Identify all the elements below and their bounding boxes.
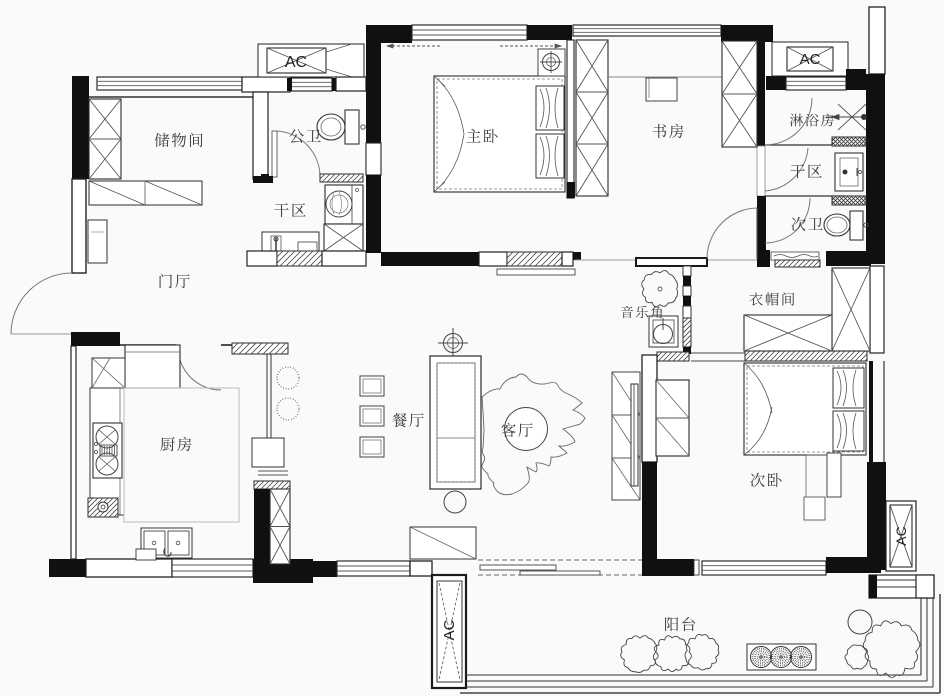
svg-text:AC: AC: [800, 51, 821, 68]
svg-text:AC: AC: [285, 54, 307, 71]
svg-text:AC: AC: [893, 526, 909, 545]
svg-text:AC: AC: [441, 619, 458, 640]
